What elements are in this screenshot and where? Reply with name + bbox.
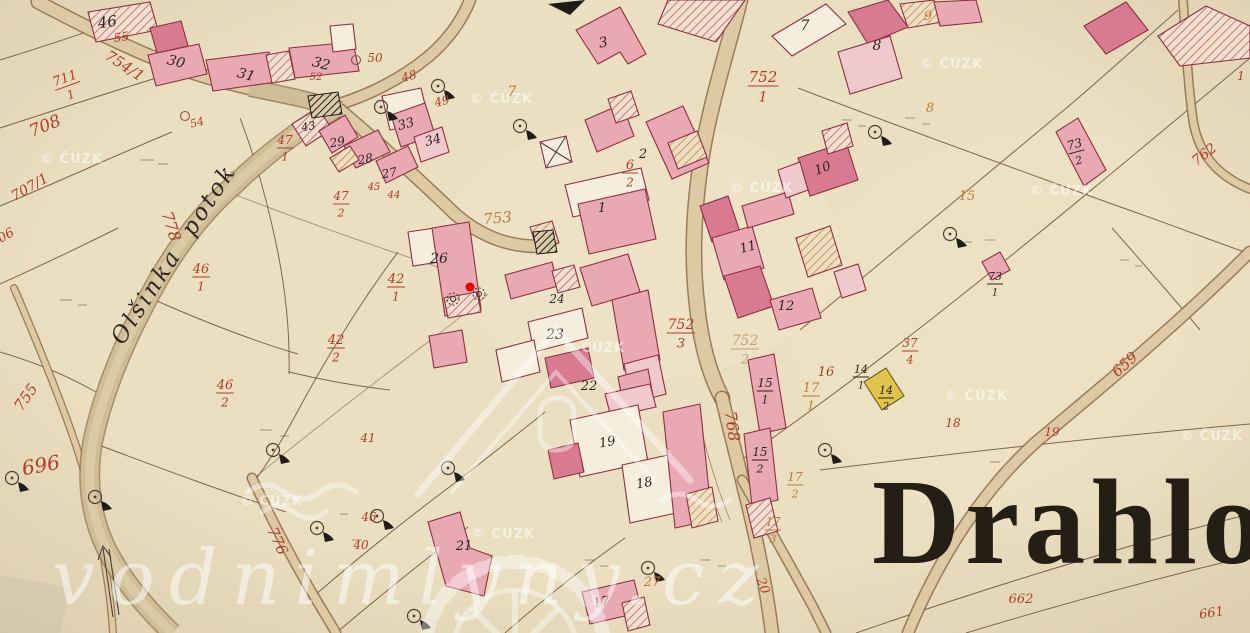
cuzk-watermark: © ČÚZK bbox=[920, 56, 983, 72]
svg-text:6: 6 bbox=[626, 158, 634, 173]
svg-text:15: 15 bbox=[757, 376, 772, 390]
svg-text:46: 46 bbox=[360, 510, 377, 524]
svg-text:50: 50 bbox=[367, 51, 383, 65]
cadastral-map: 4655754/17111708707/10654778461755696303… bbox=[0, 0, 1250, 633]
svg-text:1: 1 bbox=[392, 289, 400, 303]
parcel-label: 41 bbox=[359, 431, 375, 445]
parcel-label: 55 bbox=[113, 29, 130, 45]
parcel-label: 26 bbox=[429, 251, 448, 267]
svg-text:752: 752 bbox=[732, 333, 759, 349]
svg-text:7: 7 bbox=[801, 18, 810, 34]
svg-text:1: 1 bbox=[762, 393, 769, 406]
svg-text:1: 1 bbox=[282, 150, 289, 163]
svg-text:14: 14 bbox=[879, 384, 893, 397]
svg-text:22: 22 bbox=[580, 379, 598, 394]
parcel-label: 43 bbox=[299, 119, 316, 134]
svg-text:2: 2 bbox=[791, 487, 799, 500]
svg-text:1: 1 bbox=[1237, 69, 1245, 83]
svg-text:4: 4 bbox=[906, 353, 914, 366]
svg-text:662: 662 bbox=[1009, 592, 1034, 607]
parcel-label: 22 bbox=[580, 379, 598, 394]
svg-text:2: 2 bbox=[756, 462, 764, 475]
cuzk-watermark: © ČÚZK bbox=[945, 388, 1008, 404]
svg-text:17: 17 bbox=[787, 470, 803, 484]
parcel-label: 12 bbox=[778, 299, 795, 314]
parcel-label: 9 bbox=[924, 9, 932, 24]
svg-text:45: 45 bbox=[367, 182, 381, 193]
parcel-label: 52 bbox=[310, 72, 323, 83]
parcel-label: 16 bbox=[818, 365, 835, 380]
svg-text:41: 41 bbox=[359, 431, 375, 445]
svg-text:18: 18 bbox=[945, 416, 961, 430]
svg-text:17: 17 bbox=[765, 515, 781, 529]
svg-text:26: 26 bbox=[429, 251, 448, 267]
svg-text:24: 24 bbox=[548, 292, 564, 306]
parcel-label: 19 bbox=[1044, 425, 1060, 439]
svg-text:73: 73 bbox=[988, 270, 1002, 283]
parcel-label: 8 bbox=[873, 38, 882, 54]
svg-text:1: 1 bbox=[197, 279, 205, 293]
svg-text:752: 752 bbox=[749, 68, 778, 86]
svg-text:8: 8 bbox=[926, 101, 934, 116]
cuzk-watermark: © ČÚZK bbox=[470, 91, 533, 107]
svg-text:2: 2 bbox=[337, 206, 345, 219]
cuzk-watermark: © ČÚZK bbox=[562, 340, 625, 356]
svg-text:42: 42 bbox=[387, 272, 405, 287]
svg-text:27: 27 bbox=[380, 165, 399, 182]
parcel-label: 18 bbox=[945, 416, 961, 430]
svg-text:47: 47 bbox=[276, 133, 293, 147]
svg-text:1: 1 bbox=[598, 201, 606, 216]
svg-text:44: 44 bbox=[387, 190, 401, 201]
svg-text:16: 16 bbox=[818, 365, 835, 380]
settlement-name: Drahlo bbox=[872, 455, 1250, 590]
cuzk-watermark: © ČÚZK bbox=[730, 180, 793, 196]
svg-text:753: 753 bbox=[483, 208, 513, 228]
parcel-label: 24 bbox=[548, 292, 564, 306]
parcel-label: 45 bbox=[367, 182, 381, 193]
cuzk-watermark: © ČÚZK bbox=[40, 151, 103, 167]
cuzk-watermark: © ČÚZK bbox=[472, 526, 535, 542]
svg-text:2: 2 bbox=[331, 350, 340, 364]
svg-text:43: 43 bbox=[299, 119, 316, 134]
parcel-label: 46 bbox=[96, 12, 119, 33]
svg-text:9: 9 bbox=[924, 9, 932, 24]
cuzk-watermark: © ČÚZK bbox=[240, 493, 303, 509]
parcel-label: 44 bbox=[387, 190, 401, 201]
svg-text:55: 55 bbox=[113, 29, 130, 45]
parcel-label: 7 bbox=[801, 18, 810, 34]
svg-text:2: 2 bbox=[740, 352, 749, 367]
parcel-label: 2 bbox=[638, 147, 647, 162]
svg-text:42: 42 bbox=[327, 333, 345, 348]
svg-text:1: 1 bbox=[858, 380, 864, 391]
parcel-label: 1 bbox=[1237, 69, 1245, 83]
parcel-label: 662 bbox=[1009, 592, 1034, 607]
svg-text:3: 3 bbox=[677, 336, 685, 351]
parcel-label: 50 bbox=[367, 51, 383, 65]
parcel-label: 753 bbox=[483, 208, 513, 228]
parcel-label: 28 bbox=[356, 151, 375, 168]
svg-text:14: 14 bbox=[854, 363, 868, 376]
svg-text:8: 8 bbox=[873, 38, 882, 54]
svg-text:1: 1 bbox=[807, 398, 815, 412]
svg-text:2: 2 bbox=[220, 395, 229, 409]
svg-text:2: 2 bbox=[625, 175, 634, 189]
parcel-label: 27 bbox=[380, 165, 399, 182]
site-watermark: vodnimlyny.cz bbox=[52, 533, 772, 622]
svg-text:12: 12 bbox=[778, 299, 795, 314]
svg-text:1: 1 bbox=[992, 287, 998, 298]
parcel-label: 8 bbox=[926, 101, 934, 116]
svg-text:19: 19 bbox=[1044, 425, 1060, 439]
parcel-label: 29 bbox=[328, 134, 347, 151]
parcel-label: 46 bbox=[360, 510, 377, 524]
svg-text:2: 2 bbox=[638, 147, 647, 162]
svg-text:17: 17 bbox=[803, 381, 820, 396]
svg-text:15: 15 bbox=[752, 445, 767, 459]
svg-text:752: 752 bbox=[668, 317, 695, 333]
map-viewport: 4655754/17111708707/10654778461755696303… bbox=[0, 0, 1250, 633]
svg-text:52: 52 bbox=[310, 72, 323, 83]
svg-text:46: 46 bbox=[216, 378, 234, 393]
svg-text:2: 2 bbox=[882, 401, 889, 412]
cuzk-watermark: © ČÚZK bbox=[1030, 183, 1093, 199]
svg-text:46: 46 bbox=[96, 12, 119, 33]
svg-text:29: 29 bbox=[328, 134, 347, 151]
cuzk-watermark: © ČÚZK bbox=[1180, 428, 1243, 444]
svg-text:47: 47 bbox=[332, 189, 349, 203]
svg-text:46: 46 bbox=[192, 262, 210, 277]
parcel-label: 15 bbox=[959, 189, 976, 204]
svg-text:1: 1 bbox=[759, 89, 768, 105]
parcel-label: 1 bbox=[598, 201, 606, 216]
svg-text:28: 28 bbox=[356, 151, 375, 168]
svg-text:15: 15 bbox=[959, 189, 976, 204]
svg-text:37: 37 bbox=[902, 336, 918, 350]
mill-marker[interactable] bbox=[466, 283, 475, 292]
